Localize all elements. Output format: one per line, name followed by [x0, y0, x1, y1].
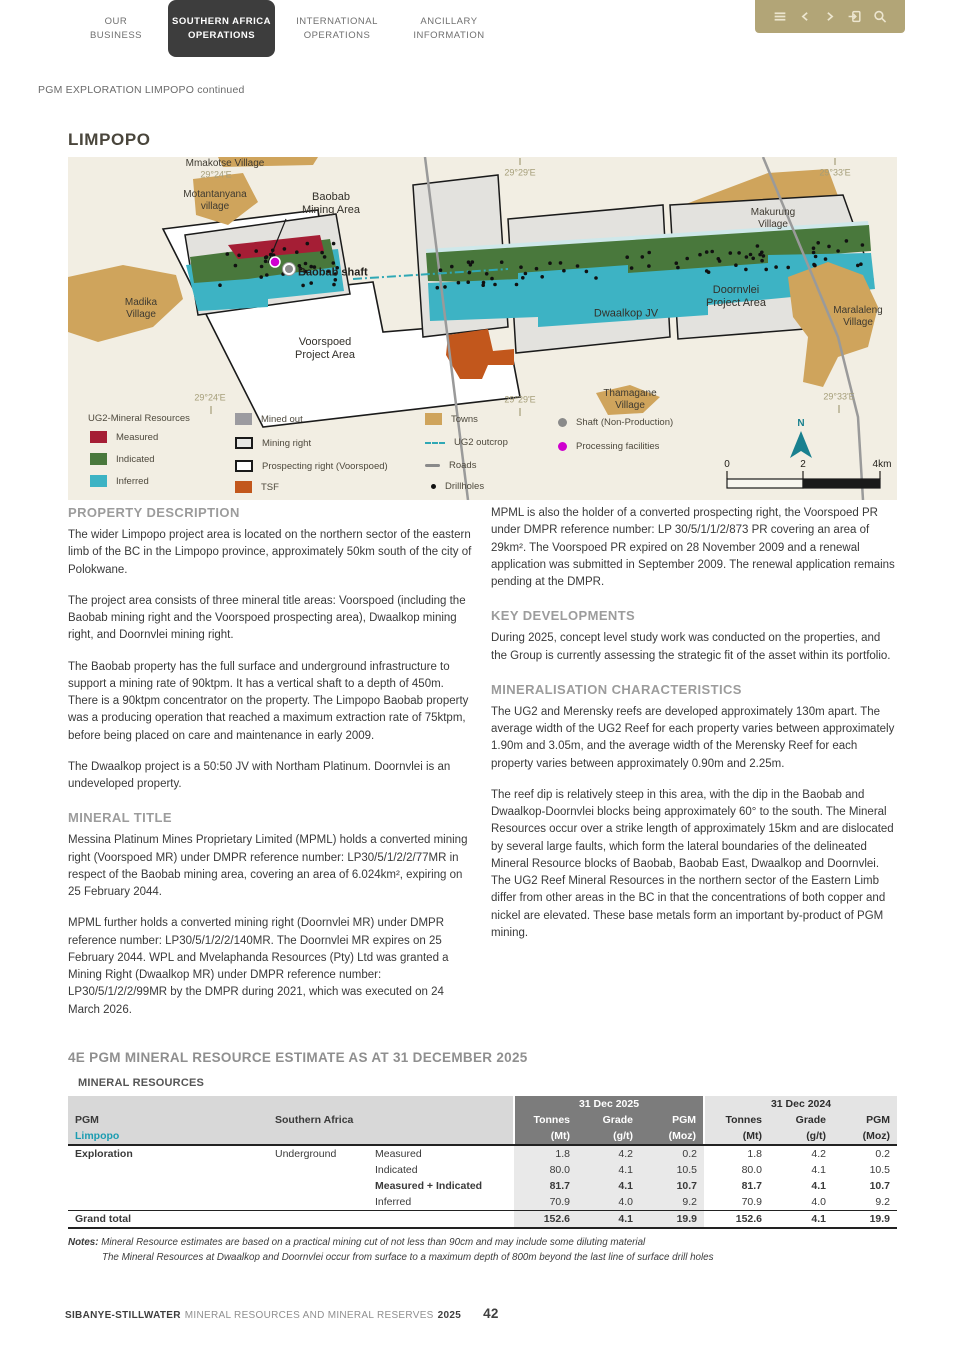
section-heading: KEY DEVELOPMENTS	[491, 608, 897, 623]
paragraph: MPML further holds a converted mining ri…	[68, 915, 474, 1019]
map-label-doornvlei-project-area: Doornvlei Project Area	[706, 284, 766, 310]
section-property-description: PROPERTY DESCRIPTION The wider Limpopo p…	[68, 505, 474, 793]
legend-measured: Measured	[90, 431, 158, 443]
paragraph: The wider Limpopo project area is locate…	[68, 527, 474, 579]
drillholes-swatch	[431, 484, 436, 489]
mined-out-swatch	[235, 413, 252, 425]
measured-swatch	[90, 431, 107, 443]
prospecting-right-swatch	[235, 460, 253, 472]
notes-line-2: The Mineral Resources at Dwaalkop and Do…	[102, 1251, 897, 1266]
grid-label-bottom-1: 29°24'E	[194, 393, 225, 404]
period-2025-header: 31 Dec 2025	[514, 1096, 704, 1112]
limpopo-map: Mmakotse Village 29°24'E 29°29'E 29°33'E…	[68, 157, 897, 500]
menu-icon[interactable]	[772, 9, 788, 24]
map-label-maralaleng-village: Maralaleng Village	[833, 305, 882, 329]
grid-label-top-3: 29°33'E	[819, 168, 850, 179]
towns-swatch	[425, 413, 442, 425]
shaft-swatch	[558, 418, 567, 427]
grid-label-bottom-3: 29°33'E	[823, 392, 854, 403]
top-navigation: OUR BUSINESS SOUTHERN AFRICA OPERATIONS …	[0, 0, 965, 60]
paragraph: The Baobab property has the full surface…	[68, 659, 474, 745]
section-mineralisation-characteristics: MINERALISATION CHARACTERISTICS The UG2 a…	[491, 682, 897, 942]
tab-our-business[interactable]: OUR BUSINESS	[60, 0, 172, 57]
inferred-swatch	[90, 475, 107, 487]
left-column: PROPERTY DESCRIPTION The wider Limpopo p…	[68, 505, 474, 1033]
scale-label-0: 0	[724, 459, 730, 471]
chevron-right-icon[interactable]	[822, 9, 838, 24]
table-row-indicated: Indicated 80.0 4.1 10.5 80.0 4.1 10.5	[68, 1162, 897, 1178]
gold-toolbar	[755, 0, 905, 33]
group-label: PGM	[68, 1112, 268, 1128]
tab-label: OUR BUSINESS	[90, 15, 142, 42]
table-title: 4E PGM MINERAL RESOURCE ESTIMATE AS AT 3…	[68, 1050, 897, 1065]
paragraph: The Dwaalkop project is a 50:50 JV with …	[68, 759, 474, 794]
tab-label: INTERNATIONAL OPERATIONS	[296, 15, 378, 42]
table-header-cols-row: PGM Southern Africa Tonnes Grade PGM Ton…	[68, 1112, 897, 1128]
region-label: Southern Africa	[268, 1112, 514, 1128]
body-columns: PROPERTY DESCRIPTION The wider Limpopo p…	[68, 505, 897, 1033]
mineral-resources-table: 31 Dec 2025 31 Dec 2024 PGM Southern Afr…	[68, 1096, 897, 1229]
grid-label-top-2: 29°29'E	[504, 168, 535, 179]
table-row-measured: Exploration Underground Measured 1.8 4.2…	[68, 1145, 897, 1162]
processing-facility-marker	[270, 257, 280, 267]
section-continuation: MPML is also the holder of a converted p…	[491, 505, 897, 591]
section-heading: PROPERTY DESCRIPTION	[68, 505, 474, 520]
tab-international-operations[interactable]: INTERNATIONAL OPERATIONS	[283, 0, 391, 57]
grid-label-bottom-2: 29°29'E	[504, 395, 535, 406]
table-row-inferred: Inferred 70.9 4.0 9.2 70.9 4.0 9.2	[68, 1194, 897, 1211]
paragraph: The reef dip is relatively steep in this…	[491, 787, 897, 942]
page-title: LIMPOPO	[68, 130, 151, 150]
table-header-period-row: 31 Dec 2025 31 Dec 2024	[68, 1096, 897, 1112]
footer-year: 2025	[438, 1310, 461, 1321]
legend-shaft: Shaft (Non-Production)	[555, 417, 673, 428]
paragraph: Messina Platinum Mines Proprietary Limit…	[68, 832, 474, 901]
legend-header: UG2-Mineral Resources	[88, 413, 190, 424]
paragraph: MPML is also the holder of a converted p…	[491, 505, 897, 591]
table-notes: Notes: Mineral Resource estimates are ba…	[68, 1236, 897, 1265]
roads-swatch	[425, 464, 440, 468]
map-label-madika-village: Madika Village	[125, 297, 157, 321]
map-label-baobab-shaft: Baobab shaft	[298, 267, 368, 280]
breadcrumb: PGM EXPLORATION LIMPOPO continued	[38, 84, 245, 96]
map-label-motantanyana-village: Motantanyana village	[183, 189, 246, 213]
map-label-makurung-village: Makurung Village	[751, 207, 795, 231]
period-2024-header: 31 Dec 2024	[704, 1096, 897, 1112]
page-footer: SIBANYE-STILLWATER MINERAL RESOURCES AND…	[65, 1306, 499, 1321]
chevron-left-icon[interactable]	[797, 9, 813, 24]
grid-label-top-1: 29°24'E	[200, 170, 231, 181]
search-icon[interactable]	[872, 9, 888, 24]
legend-towns: Towns	[425, 413, 478, 425]
legend-indicated: Indicated	[90, 453, 155, 465]
map-label-dwaalkop-jv: Dwaalkop JV	[594, 308, 658, 321]
legend-roads: Roads	[425, 460, 476, 471]
paragraph: The UG2 and Merensky reefs are developed…	[491, 704, 897, 773]
table-subtitle: MINERAL RESOURCES	[78, 1077, 897, 1089]
footer-brand: SIBANYE-STILLWATER	[65, 1310, 181, 1321]
tab-ancillary-information[interactable]: ANCILLARY INFORMATION	[398, 0, 500, 57]
section-heading: MINERAL TITLE	[68, 810, 474, 825]
legend-mining-right: Mining right	[235, 437, 311, 449]
mining-right-swatch	[235, 437, 253, 449]
notes-label: Notes:	[68, 1237, 98, 1248]
notes-line-1: Mineral Resource estimates are based on …	[101, 1237, 645, 1248]
table-row-measured-indicated: Measured + Indicated 81.7 4.1 10.7 81.7 …	[68, 1178, 897, 1194]
legend-processing: Processing facilities	[555, 441, 659, 452]
legend-drillholes: Drillholes	[425, 481, 484, 492]
legend-mined-out: Mined out	[235, 413, 303, 425]
tab-southern-africa-operations[interactable]: SOUTHERN AFRICA OPERATIONS	[168, 0, 275, 57]
legend-inferred: Inferred	[90, 475, 149, 487]
legend-ug2-outcrop: UG2 outcrop	[425, 437, 508, 448]
map-label-baobab-mining-area: Baobab Mining Area	[302, 191, 360, 217]
right-column: MPML is also the holder of a converted p…	[491, 505, 897, 1033]
processing-swatch	[558, 442, 567, 451]
map-label-thamagane-village: Thamagane Village	[603, 388, 656, 412]
scale-label-2: 2	[800, 459, 806, 471]
north-arrow	[790, 431, 812, 458]
tab-label: ANCILLARY INFORMATION	[413, 15, 484, 42]
ug2-outcrop-swatch	[425, 442, 445, 444]
resource-estimate-block: 4E PGM MINERAL RESOURCE ESTIMATE AS AT 3…	[68, 1050, 897, 1265]
north-label: N	[797, 418, 804, 430]
map-label-voorspoed-project-area: Voorspoed Project Area	[295, 336, 355, 362]
paragraph: The project area consists of three miner…	[68, 593, 474, 645]
section-mineral-title: MINERAL TITLE Messina Platinum Mines Pro…	[68, 810, 474, 1019]
tsf-swatch	[235, 481, 252, 493]
area-label: Limpopo	[68, 1128, 268, 1145]
footer-text: MINERAL RESOURCES AND MINERAL RESERVES	[185, 1310, 434, 1321]
paragraph: During 2025, concept level study work wa…	[491, 630, 897, 665]
table-row-grand-total: Grand total 152.6 4.1 19.9 152.6 4.1 19.…	[68, 1211, 897, 1229]
report-page: OUR BUSINESS SOUTHERN AFRICA OPERATIONS …	[0, 0, 965, 1365]
tab-label: SOUTHERN AFRICA OPERATIONS	[172, 15, 271, 42]
table-header-units-row: Limpopo (Mt) (g/t) (Moz) (Mt) (g/t) (Moz…	[68, 1128, 897, 1145]
scale-label-4km: 4km	[873, 459, 892, 471]
shaft-marker	[285, 265, 293, 273]
scale-bar	[727, 471, 880, 488]
legend-tsf: TSF	[235, 481, 279, 493]
map-label-mmakotse-village: Mmakotse Village	[186, 158, 265, 170]
footer-page-number: 42	[483, 1306, 499, 1321]
indicated-swatch	[90, 453, 107, 465]
exit-icon[interactable]	[847, 9, 863, 24]
legend-prospecting-right: Prospecting right (Voorspoed)	[235, 460, 388, 472]
section-key-developments: KEY DEVELOPMENTS During 2025, concept le…	[491, 608, 897, 665]
section-heading: MINERALISATION CHARACTERISTICS	[491, 682, 897, 697]
